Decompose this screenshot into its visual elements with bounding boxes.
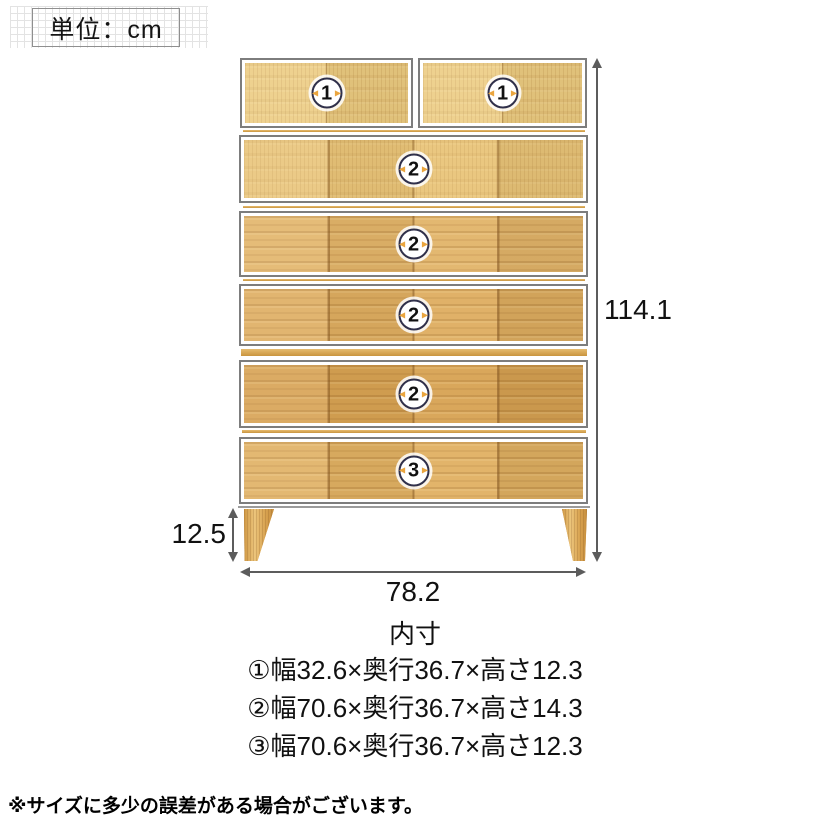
arrowhead-right-icon xyxy=(576,567,586,577)
carcass-strip xyxy=(243,130,585,132)
leg-height-value: 12.5 xyxy=(150,518,226,550)
drawer-number: 2 xyxy=(408,159,419,179)
open-arrow-right-icon: ▶ xyxy=(335,89,341,97)
open-arrow-right-icon: ▶ xyxy=(422,165,428,173)
drawer-number: 3 xyxy=(408,461,419,481)
drawer-3: ◀ 2 ▶ xyxy=(239,211,588,277)
drawer-number: 2 xyxy=(408,234,419,254)
open-arrow-right-icon: ▶ xyxy=(422,311,428,319)
carcass-strip xyxy=(242,430,586,433)
drawer-number-badge: ◀ 3 ▶ xyxy=(398,455,429,486)
drawer-number-badge: ◀ 1 ▶ xyxy=(487,78,518,109)
open-arrow-left-icon: ◀ xyxy=(399,240,405,248)
drawer-2: ◀ 2 ▶ xyxy=(239,135,588,203)
arrowhead-left-icon xyxy=(240,567,250,577)
open-arrow-right-icon: ▶ xyxy=(422,467,428,475)
open-arrow-left-icon: ◀ xyxy=(399,390,405,398)
open-arrow-right-icon: ▶ xyxy=(422,240,428,248)
arrowhead-down-icon xyxy=(592,552,602,562)
total-height-value: 114.1 xyxy=(604,294,672,326)
total-width-value: 78.2 xyxy=(338,576,488,608)
inner-dimensions-section: 内寸 ①幅32.6×奥行36.7×高さ12.3 ②幅70.6×奥行36.7×高さ… xyxy=(0,617,830,765)
drawer-number: 1 xyxy=(321,83,332,103)
drawer-1-right: ◀ 1 ▶ xyxy=(418,58,587,128)
inner-dimension-item: ②幅70.6×奥行36.7×高さ14.3 xyxy=(0,689,830,727)
drawer-1-left: ◀ 1 ▶ xyxy=(240,58,413,128)
carcass-strip xyxy=(243,206,585,208)
drawer-5: ◀ 2 ▶ xyxy=(239,360,588,428)
chest-bottom-edge xyxy=(238,506,590,508)
drawer-number-badge: ◀ 2 ▶ xyxy=(398,229,429,260)
right-leg xyxy=(562,509,587,561)
drawer-number-badge: ◀ 2 ▶ xyxy=(398,154,429,185)
height-dimension-line xyxy=(596,66,598,556)
left-leg xyxy=(244,509,274,561)
arrowhead-up-icon xyxy=(228,508,238,518)
unit-label-area: 単位：cm xyxy=(10,6,208,48)
drawer-number-badge: ◀ 2 ▶ xyxy=(398,379,429,410)
furniture-dimension-diagram-page: { "unit_label": "単位：cm", "icons": { "ope… xyxy=(0,0,830,830)
drawer-4: ◀ 2 ▶ xyxy=(239,284,588,346)
inner-dimension-item: ①幅32.6×奥行36.7×高さ12.3 xyxy=(0,651,830,689)
drawer-number: 2 xyxy=(408,384,419,404)
arrowhead-down-icon xyxy=(228,552,238,562)
inner-dimensions-title: 内寸 xyxy=(0,617,830,651)
inner-dimension-item: ③幅70.6×奥行36.7×高さ12.3 xyxy=(0,727,830,765)
drawer-6: ◀ 3 ▶ xyxy=(239,437,588,504)
open-arrow-left-icon: ◀ xyxy=(312,89,318,97)
width-dimension-line xyxy=(248,571,578,573)
open-arrow-right-icon: ▶ xyxy=(422,390,428,398)
open-arrow-left-icon: ◀ xyxy=(399,311,405,319)
open-arrow-left-icon: ◀ xyxy=(399,467,405,475)
open-arrow-left-icon: ◀ xyxy=(488,89,494,97)
open-arrow-right-icon: ▶ xyxy=(511,89,517,97)
size-disclaimer-note: ※サイズに多少の誤差がある場合がございます。 xyxy=(8,791,423,818)
carcass-strip xyxy=(243,279,585,281)
unit-label: 単位：cm xyxy=(49,10,162,46)
open-arrow-left-icon: ◀ xyxy=(399,165,405,173)
drawer-number: 1 xyxy=(497,83,508,103)
carcass-strip xyxy=(241,349,587,356)
unit-label-box: 単位：cm xyxy=(32,8,180,47)
arrowhead-up-icon xyxy=(592,58,602,68)
drawer-number-badge: ◀ 1 ▶ xyxy=(311,78,342,109)
leg-dimension-line xyxy=(232,515,234,555)
drawer-number: 2 xyxy=(408,305,419,325)
drawer-number-badge: ◀ 2 ▶ xyxy=(398,300,429,331)
